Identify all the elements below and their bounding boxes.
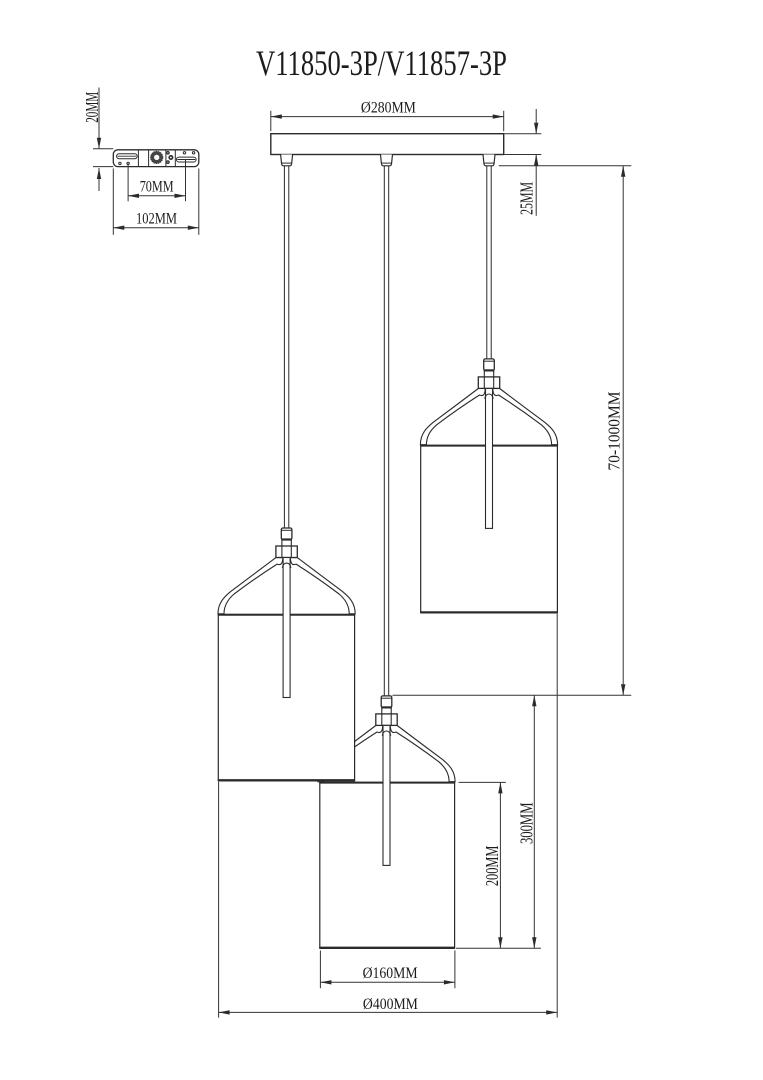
svg-text:102MM: 102MM: [136, 211, 177, 228]
svg-text:20MM: 20MM: [82, 92, 102, 123]
svg-text:25MM: 25MM: [516, 182, 536, 215]
svg-text:300MM: 300MM: [517, 803, 537, 845]
svg-text:Ø160MM: Ø160MM: [363, 965, 418, 982]
svg-text:Ø280MM: Ø280MM: [361, 100, 416, 117]
svg-text:200MM: 200MM: [482, 846, 502, 887]
svg-text:70-1000MM: 70-1000MM: [605, 392, 624, 471]
svg-text:Ø400MM: Ø400MM: [363, 996, 418, 1013]
svg-text:V11850-3P/V11857-3P: V11850-3P/V11857-3P: [256, 43, 507, 83]
svg-text:70MM: 70MM: [140, 179, 174, 196]
